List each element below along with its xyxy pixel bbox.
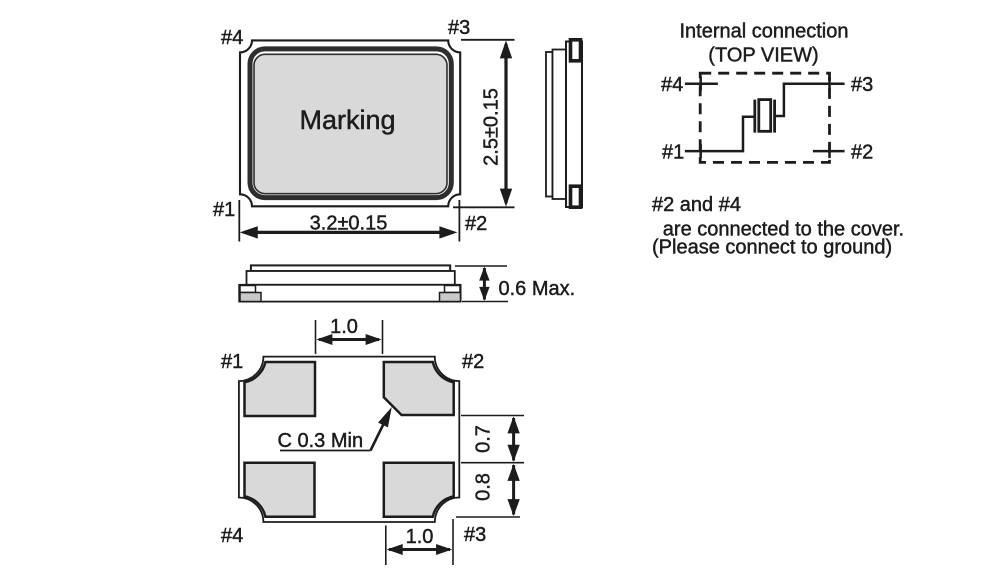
- svg-text:1.0: 1.0: [330, 316, 358, 338]
- svg-text:#4: #4: [661, 74, 683, 96]
- svg-text:#1: #1: [662, 142, 684, 164]
- svg-text:#2: #2: [462, 351, 484, 373]
- svg-text:C 0.3 Min: C 0.3 Min: [278, 430, 364, 452]
- svg-text:(Please connect to ground): (Please connect to ground): [652, 237, 892, 259]
- svg-text:Internal connection: Internal connection: [679, 21, 848, 43]
- svg-text:3.2±0.15: 3.2±0.15: [310, 213, 388, 235]
- svg-text:Marking: Marking: [299, 105, 395, 135]
- svg-text:#2 and #4: #2 and #4: [652, 194, 741, 216]
- svg-text:#2: #2: [851, 142, 873, 164]
- svg-text:#2: #2: [465, 213, 487, 235]
- svg-text:2.5±0.15: 2.5±0.15: [481, 88, 503, 166]
- svg-text:#3: #3: [464, 524, 486, 546]
- svg-text:#1: #1: [221, 351, 243, 373]
- svg-text:#4: #4: [221, 525, 243, 547]
- svg-text:#4: #4: [221, 27, 243, 49]
- svg-text:#1: #1: [213, 199, 235, 221]
- svg-text:1.0: 1.0: [406, 526, 434, 548]
- svg-text:#3: #3: [448, 17, 470, 39]
- svg-text:0.6 Max.: 0.6 Max.: [499, 278, 576, 300]
- svg-text:(TOP VIEW): (TOP VIEW): [708, 45, 818, 67]
- svg-text:0.8: 0.8: [473, 473, 495, 501]
- svg-text:#3: #3: [851, 74, 873, 96]
- svg-text:0.7: 0.7: [473, 425, 495, 453]
